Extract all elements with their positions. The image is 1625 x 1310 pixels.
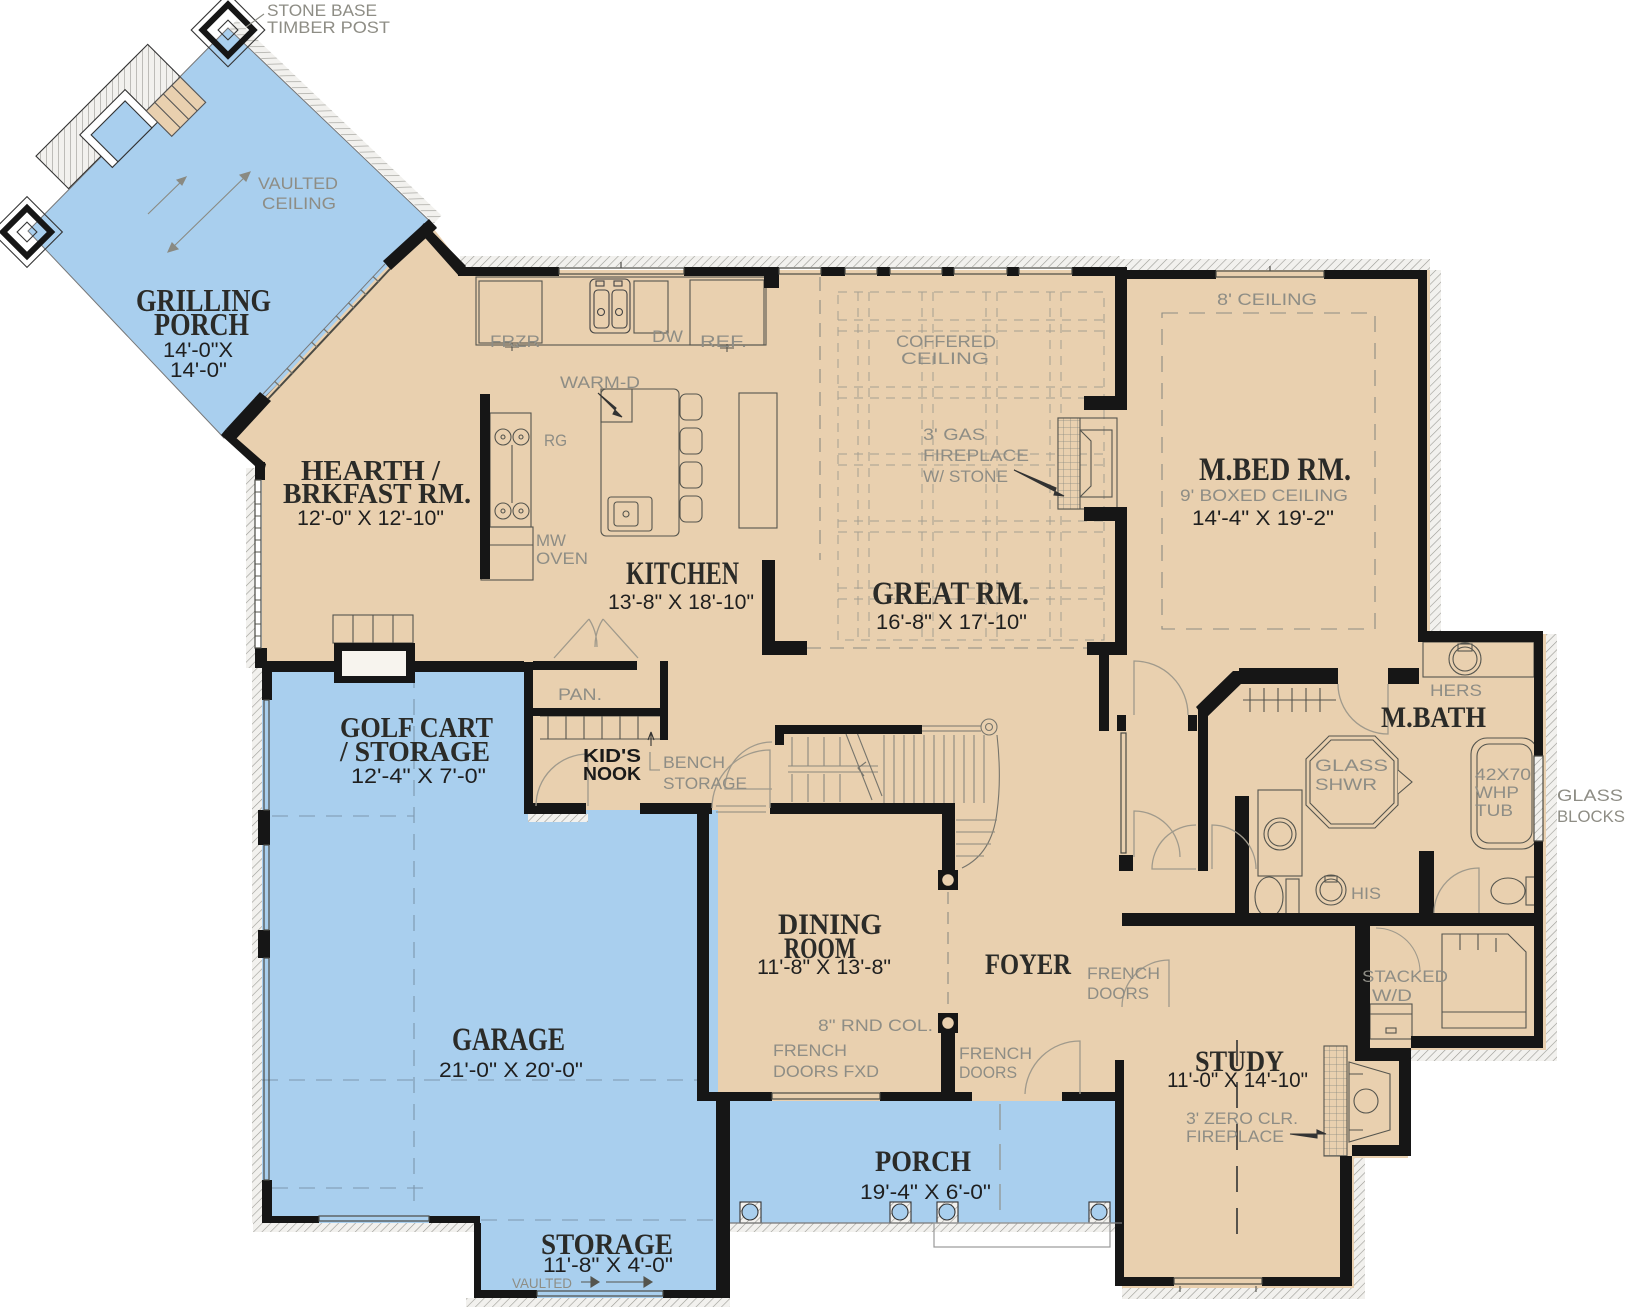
svg-text:KID'S: KID'S <box>583 746 641 766</box>
svg-text:RG: RG <box>544 431 567 450</box>
svg-text:14'-4" X 19'-2": 14'-4" X 19'-2" <box>1192 507 1334 530</box>
svg-text:STORAGE: STORAGE <box>663 774 747 793</box>
svg-text:11'-8" X 13'-8": 11'-8" X 13'-8" <box>757 956 891 979</box>
svg-text:CEILING: CEILING <box>262 194 336 213</box>
svg-text:STACKED: STACKED <box>1362 967 1448 986</box>
svg-text:FIREPLACE: FIREPLACE <box>923 446 1029 465</box>
svg-text:FOYER: FOYER <box>985 948 1071 981</box>
svg-text:GLASS: GLASS <box>1315 756 1388 775</box>
svg-text:11'-0" X 14'-10": 11'-0" X 14'-10" <box>1167 1069 1308 1092</box>
svg-text:GARAGE: GARAGE <box>452 1022 565 1058</box>
svg-text:FRENCH: FRENCH <box>959 1044 1032 1063</box>
svg-text:WARM-D: WARM-D <box>560 373 640 392</box>
svg-text:REF.: REF. <box>700 332 747 351</box>
svg-text:DOORS: DOORS <box>1087 984 1149 1003</box>
svg-text:FRZR: FRZR <box>490 332 540 351</box>
svg-text:TIMBER POST: TIMBER POST <box>267 18 390 37</box>
svg-text:GLASS: GLASS <box>1557 786 1623 805</box>
svg-text:16'-8" X 17'-10": 16'-8" X 17'-10" <box>876 611 1027 634</box>
svg-text:HERS: HERS <box>1430 681 1482 700</box>
svg-text:OVEN: OVEN <box>536 549 588 568</box>
svg-text:8" RND COL.: 8" RND COL. <box>818 1016 933 1035</box>
svg-text:TUB: TUB <box>1475 801 1513 820</box>
svg-text:DOORS: DOORS <box>959 1063 1017 1082</box>
svg-text:21'-0" X 20'-0": 21'-0" X 20'-0" <box>439 1059 583 1082</box>
svg-text:12'-4" X 7'-0": 12'-4" X 7'-0" <box>351 765 486 788</box>
svg-text:VAULTED: VAULTED <box>258 174 338 193</box>
svg-text:3' GAS: 3' GAS <box>923 425 985 444</box>
svg-text:VAULTED: VAULTED <box>512 1275 572 1291</box>
svg-text:13'-8" X 18'-10": 13'-8" X 18'-10" <box>608 591 754 614</box>
svg-text:PORCH: PORCH <box>875 1145 971 1178</box>
svg-text:11'-8" X 4'-0": 11'-8" X 4'-0" <box>543 1254 673 1277</box>
svg-text:FIREPLACE: FIREPLACE <box>1186 1127 1284 1146</box>
svg-text:MW: MW <box>536 531 566 550</box>
svg-text:42X70: 42X70 <box>1475 765 1531 784</box>
svg-text:CEILING: CEILING <box>901 349 989 368</box>
svg-text:WHP: WHP <box>1475 783 1519 802</box>
svg-text:W/ STONE: W/ STONE <box>923 467 1008 486</box>
svg-text:M.BED RM.: M.BED RM. <box>1199 452 1351 488</box>
svg-text:3' ZERO CLR.: 3' ZERO CLR. <box>1186 1109 1298 1128</box>
svg-text:FRENCH: FRENCH <box>773 1041 847 1060</box>
svg-text:M.BATH: M.BATH <box>1381 701 1486 734</box>
svg-text:BRKFAST RM.: BRKFAST RM. <box>283 478 471 510</box>
svg-text:PORCH: PORCH <box>154 306 249 342</box>
svg-text:9' BOXED CEILING: 9' BOXED CEILING <box>1180 486 1348 505</box>
svg-text:DW: DW <box>652 327 683 346</box>
svg-text:GREAT RM.: GREAT RM. <box>872 576 1029 612</box>
svg-text:NOOK: NOOK <box>583 764 641 784</box>
svg-text:KITCHEN: KITCHEN <box>626 556 739 592</box>
svg-text:DOORS FXD: DOORS FXD <box>773 1062 879 1081</box>
svg-text:/ STORAGE: / STORAGE <box>339 736 490 768</box>
svg-text:FRENCH: FRENCH <box>1087 964 1160 983</box>
svg-text:W/D: W/D <box>1372 986 1412 1005</box>
svg-text:SHWR: SHWR <box>1315 775 1377 794</box>
svg-text:8' CEILING: 8' CEILING <box>1217 290 1317 309</box>
svg-text:14'-0": 14'-0" <box>170 359 227 382</box>
svg-text:BLOCKS: BLOCKS <box>1557 807 1625 826</box>
svg-text:PAN.: PAN. <box>558 685 602 704</box>
svg-text:BENCH: BENCH <box>663 753 725 772</box>
svg-text:HIS: HIS <box>1351 884 1381 903</box>
svg-text:19'-4" X 6'-0": 19'-4" X 6'-0" <box>860 1181 991 1204</box>
svg-text:12'-0" X 12'-10": 12'-0" X 12'-10" <box>297 507 444 530</box>
